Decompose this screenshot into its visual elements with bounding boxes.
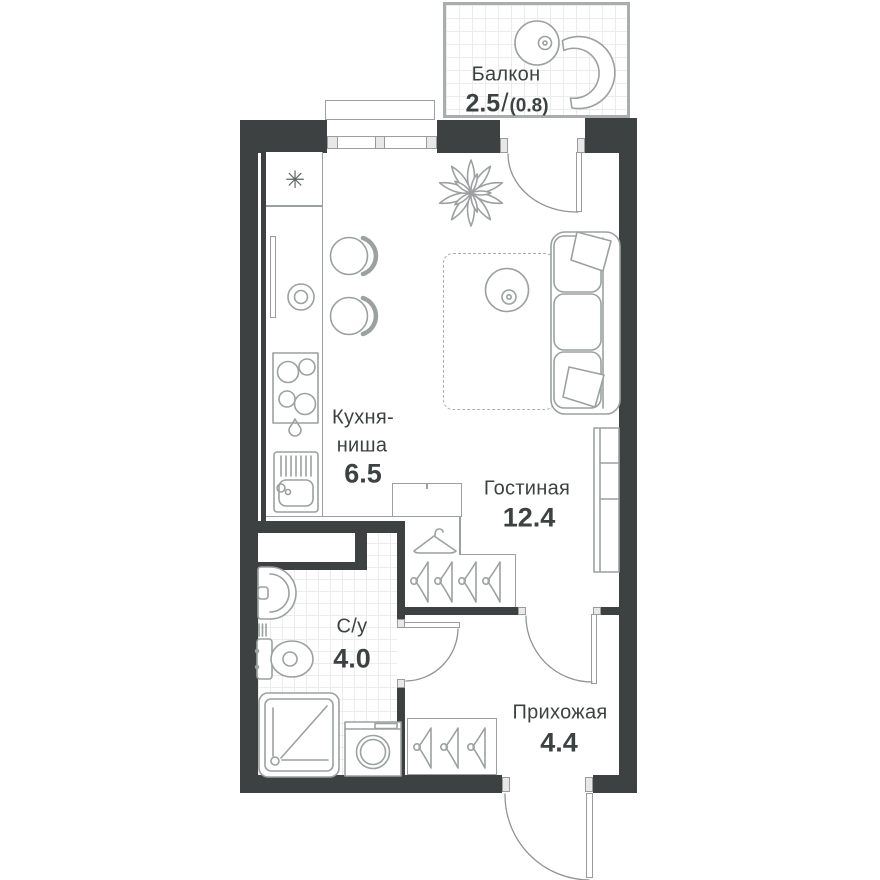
hallway-label: Прихожая (512, 702, 607, 725)
entry-door-arc (502, 792, 590, 880)
kitchen-sink-icon (272, 450, 322, 514)
balcony-area-separator: / (501, 88, 508, 119)
plant-icon (433, 155, 509, 231)
wall-top-b (437, 120, 500, 153)
hanger-side-icon (412, 724, 436, 772)
dresser-tick (426, 483, 428, 489)
hanger-side-icon (433, 558, 457, 606)
closet-line (515, 554, 517, 608)
kitchen-label-line1: Кухня- (332, 407, 394, 430)
sofa-icon (549, 229, 623, 417)
balcony-label: Балкон (472, 64, 541, 87)
stove-icon (272, 351, 320, 425)
window-sill (325, 100, 435, 120)
wall-top-right-corner (585, 118, 637, 153)
hallway-area: 4.4 (540, 728, 578, 759)
shaft-interior (258, 533, 355, 562)
counter-ring-icon (287, 283, 317, 313)
door-jamb (585, 777, 593, 792)
washbasin-icon (257, 566, 299, 638)
round-table-icon (484, 266, 532, 314)
wall-bottom-b (593, 775, 637, 793)
window-cap-mid (375, 136, 385, 149)
wardrobe-cabinet (593, 427, 621, 574)
window-cap-left (327, 136, 338, 149)
hanger-side-icon (457, 558, 481, 606)
wall-left (240, 120, 258, 793)
balcony-door-arc (506, 152, 580, 214)
kitchen-area: 6.5 (344, 459, 382, 490)
stool-icon (329, 234, 379, 278)
stool-icon (329, 294, 379, 338)
hall-door-arc (524, 614, 594, 684)
bathroom-label: С/у (337, 616, 368, 639)
living-area: 12.4 (503, 503, 556, 534)
window-cap-right (426, 136, 437, 149)
wall-top-a (240, 120, 327, 153)
hanger-side-icon (409, 558, 433, 606)
water-drop-icon (288, 418, 302, 436)
door-jamb (500, 138, 508, 153)
shaft-wall-top (258, 521, 405, 533)
partition-living-hall-left (397, 607, 518, 615)
floor-plan: ✳ (0, 0, 880, 880)
door-jamb (502, 777, 510, 792)
toilet-icon (256, 636, 318, 682)
radiator (270, 236, 276, 318)
closet-line (323, 516, 460, 518)
closet-line (459, 554, 516, 556)
living-label: Гостиная (484, 478, 570, 501)
kitchen-label-line2: ниша (337, 435, 388, 458)
snowflake-icon: ✳ (285, 169, 305, 193)
balcony-area: 2.5/(0.8) (465, 88, 548, 119)
washing-machine-icon (344, 721, 402, 778)
balcony-area-secondary: (0.8) (509, 96, 548, 118)
fridge-divider-line (266, 205, 323, 207)
hanger-side-icon (466, 724, 490, 772)
hanger-side-icon (439, 724, 463, 772)
bath-door-arc (402, 626, 462, 684)
partition-living-hall-right (601, 607, 619, 615)
balcony-area-main: 2.5 (465, 90, 500, 119)
bathroom-area: 4.0 (333, 644, 371, 675)
shower-icon (258, 692, 342, 778)
door-jamb (577, 138, 585, 153)
balcony-chair-icon (551, 34, 615, 114)
hanger-side-icon (481, 558, 505, 606)
hanger-top-icon (412, 527, 460, 555)
